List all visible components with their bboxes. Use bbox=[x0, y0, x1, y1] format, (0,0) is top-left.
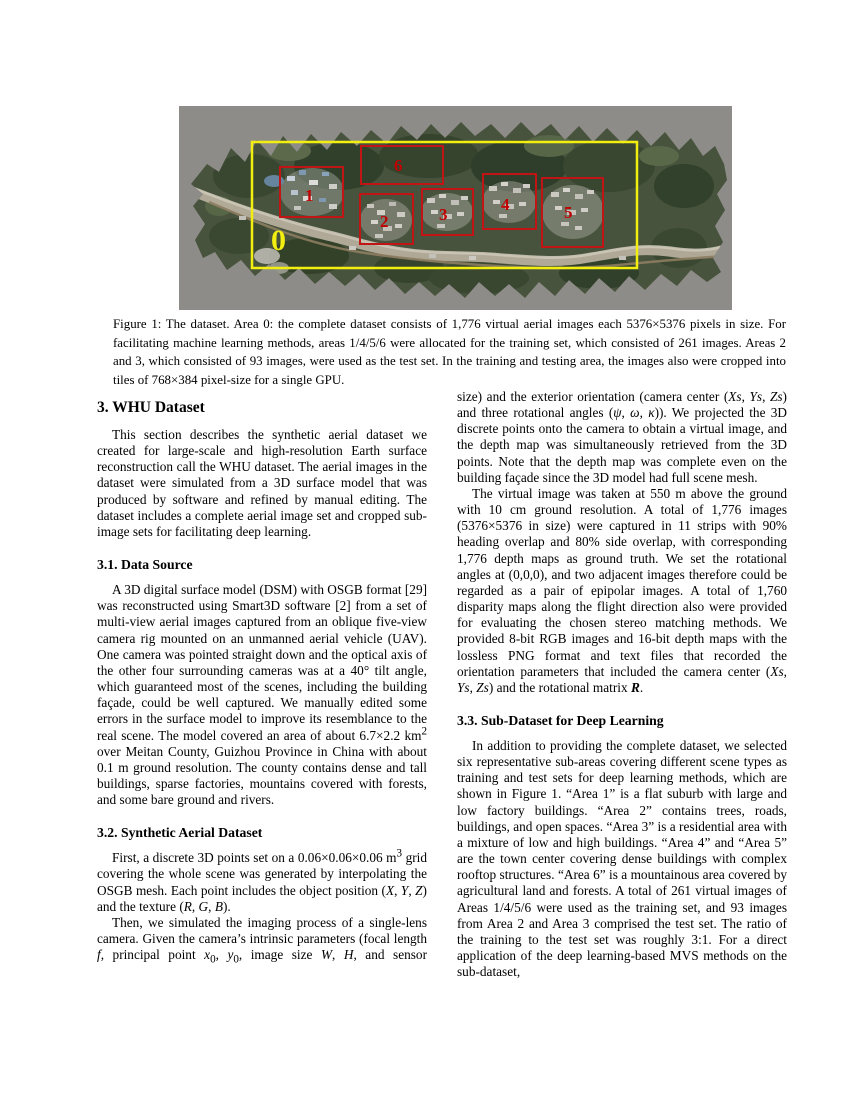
area-5-label: 5 bbox=[564, 203, 573, 222]
paragraph-virtual-image: The virtual image was taken at 550 m abo… bbox=[457, 486, 787, 696]
left-column: 3. WHU Dataset This section describes th… bbox=[97, 398, 427, 963]
figure1-aerial-image: 0 1 2 3 4 5 6 bbox=[179, 106, 732, 310]
buildings-area5 bbox=[542, 185, 604, 239]
area-1-label: 1 bbox=[305, 186, 314, 205]
section-3-2-heading: 3.2. Synthetic Aerial Dataset bbox=[97, 824, 427, 841]
paragraph-camera-params: Then, we simulated the imaging process o… bbox=[97, 915, 427, 963]
area-2-label: 2 bbox=[380, 212, 389, 231]
paper-page: 0 1 2 3 4 5 6 Figure 1: The dataset. Are… bbox=[0, 0, 850, 1100]
paragraph-points-grid: First, a discrete 3D points set on a 0.0… bbox=[97, 850, 427, 915]
paragraph-intro: This section describes the synthetic aer… bbox=[97, 427, 427, 540]
area-6-label: 6 bbox=[394, 156, 403, 175]
section-3-3-heading: 3.3. Sub-Dataset for Deep Learning bbox=[457, 712, 787, 729]
paragraph-data-source: A 3D digital surface model (DSM) with OS… bbox=[97, 582, 427, 808]
right-column: size) and the exterior orientation (came… bbox=[457, 389, 787, 980]
area-0-label: 0 bbox=[271, 224, 286, 257]
section-3-1-heading: 3.1. Data Source bbox=[97, 556, 427, 573]
area-4-label: 4 bbox=[501, 195, 510, 214]
section-3-heading: 3. WHU Dataset bbox=[97, 398, 427, 417]
figure1-caption: Figure 1: The dataset. Area 0: the compl… bbox=[113, 315, 786, 389]
figure1: 0 1 2 3 4 5 6 bbox=[179, 106, 732, 310]
paragraph-sub-dataset: In addition to providing the complete da… bbox=[457, 738, 787, 980]
area-3-label: 3 bbox=[439, 205, 448, 224]
paragraph-exterior-orientation: size) and the exterior orientation (came… bbox=[457, 389, 787, 486]
